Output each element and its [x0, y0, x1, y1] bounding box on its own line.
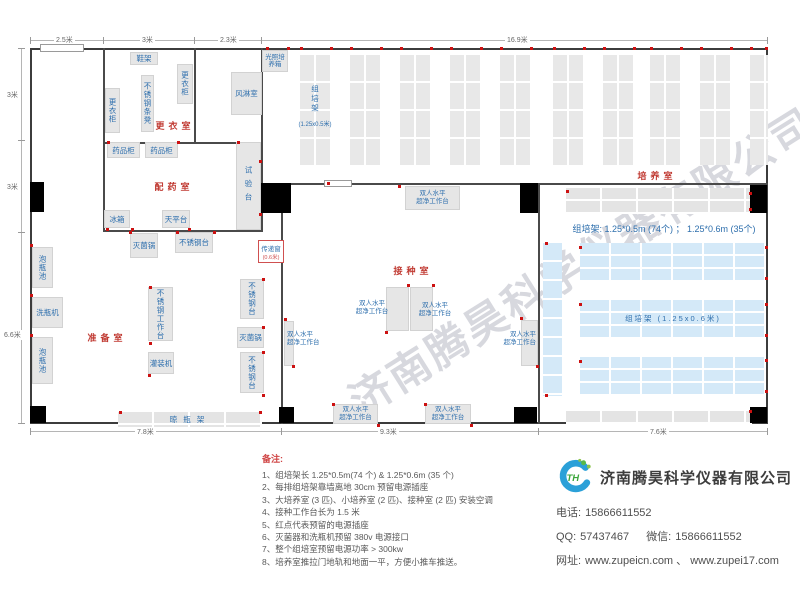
power-outlet-dot [385, 331, 388, 334]
room-label-pharmacy: 配药室 [145, 180, 203, 193]
power-outlet-dot [262, 351, 265, 354]
pass-window-label: 传递窗 [261, 243, 281, 253]
power-outlet-dot [350, 47, 353, 50]
power-outlet-dot [749, 410, 752, 413]
door-block [30, 182, 44, 212]
culture-rack [450, 55, 480, 165]
power-outlet-dot [177, 141, 180, 144]
shoe-rack: 鞋架 [130, 52, 158, 65]
dim-label: 2.3米 [218, 35, 239, 45]
dim-tick [18, 423, 25, 424]
culture-rack [553, 55, 583, 165]
medicine-cabinet: 药品柜 [107, 142, 140, 158]
culture-rack [650, 55, 680, 165]
power-outlet-dot [237, 141, 240, 144]
door-block [261, 183, 291, 213]
wall [281, 183, 283, 424]
power-outlet-dot [266, 47, 269, 50]
dim-tick [103, 37, 104, 44]
power-outlet-dot [107, 141, 110, 144]
power-outlet-dot [545, 242, 548, 245]
power-outlet-dot [30, 334, 33, 337]
culture-rack-blue: 组培架 (1.25x0.6米) [580, 300, 766, 337]
wall [538, 183, 540, 424]
room-label-changing: 更衣室 [147, 119, 203, 132]
soak-pool: 泡瓶池 [32, 247, 53, 288]
fridge: 冰箱 [104, 210, 130, 228]
power-outlet-dot [30, 244, 33, 247]
clean-bench-label: 双人水平 [343, 406, 369, 414]
room-label-prep: 准备室 [78, 331, 136, 344]
power-outlet-dot [188, 228, 191, 231]
dim-tick [281, 428, 282, 435]
power-outlet-dot [262, 394, 265, 397]
light-incubator: 光照培养箱 [262, 50, 288, 72]
wall [103, 48, 105, 232]
clean-bench-label: 双人水平超净工作台 [413, 302, 457, 318]
note-item: 6、灭菌器和洗瓶机预留 380v 电源接口 [262, 531, 547, 543]
power-outlet-dot [424, 403, 427, 406]
balance-table: 天平台 [162, 210, 190, 228]
power-outlet-dot [765, 359, 768, 362]
dim-tick [538, 428, 539, 435]
dim-tick [18, 140, 25, 141]
stainless-table: 不锈钢台 [240, 279, 264, 319]
drying-rack: 晾瓶架 [118, 412, 262, 427]
power-outlet-dot [259, 213, 262, 216]
power-outlet-dot [332, 403, 335, 406]
culture-rack-blue [580, 243, 766, 280]
power-outlet-dot [259, 160, 262, 163]
power-outlet-dot [480, 47, 483, 50]
power-outlet-dot [330, 47, 333, 50]
dim-tick [30, 37, 31, 44]
power-outlet-dot [680, 47, 683, 50]
power-outlet-dot [30, 294, 33, 297]
dim-label: 3米 [5, 90, 20, 100]
dim-label: 3米 [5, 182, 20, 192]
bottle-washer: 洗瓶机 [32, 297, 63, 328]
power-outlet-dot [765, 246, 768, 249]
company-site-line: 网址:www.zupeicn.com 、 www.zupei17.com [556, 552, 791, 568]
website: www.zupeicn.com 、 www.zupei17.com [585, 555, 779, 567]
room-label-inoculation: 接种室 [384, 264, 442, 277]
power-outlet-dot [380, 47, 383, 50]
power-outlet-dot [583, 47, 586, 50]
door-opening [40, 44, 84, 52]
rack-blue-label: 组培架 (1.25x0.6米) [625, 313, 721, 324]
note-item: 1、组培架长 1.25*0.5m(74 个) & 1.25*0.6m (35 个… [262, 469, 547, 481]
power-outlet-dot [430, 47, 433, 50]
power-outlet-dot [765, 303, 768, 306]
soak-pool: 泡瓶池 [32, 337, 53, 384]
culture-rack [603, 55, 633, 165]
dim-tick [261, 37, 262, 44]
svg-text:TH: TH [566, 473, 580, 484]
room-label-culture: 培养室 [628, 169, 686, 182]
power-outlet-dot [106, 228, 109, 231]
drying-rack-label: 晾瓶架 [170, 414, 211, 425]
note-item: 3、大培养室 (3 匹)、小培养室 (2 匹)、接种室 (2 匹) 安装空调 [262, 494, 547, 506]
sterilizer: 灭菌锅 [130, 233, 158, 258]
note-item: 8、培养室推拉门地轨和地面一平，方便小推车推送。 [262, 556, 547, 568]
door-block [30, 406, 46, 423]
power-outlet-dot [500, 47, 503, 50]
power-outlet-dot [300, 47, 303, 50]
clean-bench: 双人水平 超净工作台 [425, 404, 471, 424]
dim-tick [30, 428, 31, 435]
note-item: 2、每排组培架靠墙离地 30cm 预留电源插座 [262, 481, 547, 493]
power-outlet-dot [750, 47, 753, 50]
culture-rack-blue [580, 357, 766, 394]
medicine-cabinet: 药品柜 [145, 142, 178, 158]
culture-rack [750, 55, 768, 165]
culture-rack-horizontal [566, 411, 752, 424]
dim-tick [767, 37, 768, 44]
clean-bench-label: 超净工作台 [416, 198, 449, 206]
power-outlet-dot [377, 424, 380, 427]
power-outlet-dot [650, 47, 653, 50]
test-bench: 试验台 [236, 142, 261, 230]
door-block [279, 407, 294, 423]
clean-bench-label: 双人水平 [435, 406, 461, 414]
dim-label: 16.9米 [505, 35, 530, 45]
clean-bench: 双人水平 超净工作台 [405, 186, 460, 210]
culture-rack-label: 组培架 (1.25x0.5米) [294, 85, 336, 128]
power-outlet-dot [730, 47, 733, 50]
clean-bench-label: 双人水平超净工作台 [492, 331, 536, 347]
company-phone-line: 电话:15866611552 [556, 504, 791, 520]
power-outlet-dot [149, 342, 152, 345]
power-outlet-dot [520, 317, 523, 320]
power-outlet-dot [765, 47, 768, 50]
power-outlet-dot [176, 231, 179, 234]
locker: 更衣柜 [177, 64, 193, 104]
clean-bench: 双人水平 超净工作台 [333, 404, 378, 424]
power-outlet-dot [149, 286, 152, 289]
wechat-number: 15866611552 [675, 531, 741, 543]
dim-label: 7.8米 [135, 427, 156, 437]
qq-number: 57437467 [580, 531, 629, 543]
power-outlet-dot [119, 411, 122, 414]
power-outlet-dot [287, 47, 290, 50]
pass-window: 传递窗 (0.6米) [258, 240, 284, 263]
dimension-line-left [21, 48, 22, 424]
dim-label: 3米 [140, 35, 155, 45]
filling-machine: 灌装机 [148, 352, 174, 374]
power-outlet-dot [450, 47, 453, 50]
dim-tick [18, 232, 25, 233]
power-outlet-dot [579, 246, 582, 249]
door-block [514, 407, 537, 423]
dim-label: 9.3米 [378, 427, 399, 437]
power-outlet-dot [749, 192, 752, 195]
note-item: 7、整个组培室预留电源功率 > 300kw [262, 543, 547, 555]
power-outlet-dot [566, 190, 569, 193]
power-outlet-dot [603, 47, 606, 50]
power-outlet-dot [400, 47, 403, 50]
power-outlet-dot [530, 47, 533, 50]
dim-tick [194, 37, 195, 44]
phone-number: 15866611552 [585, 507, 651, 519]
power-outlet-dot [579, 360, 582, 363]
notes-title: 备注: [262, 452, 547, 465]
air-shower: 风淋室 [231, 72, 262, 115]
power-outlet-dot [327, 182, 330, 185]
pass-window-size: (0.6米) [263, 253, 280, 261]
dim-tick [767, 428, 768, 435]
note-item: 4、接种工作台长为 1.5 米 [262, 506, 547, 518]
dim-label: 7.6米 [648, 427, 669, 437]
company-logo: TH [556, 458, 594, 496]
power-outlet-dot [470, 424, 473, 427]
power-outlet-dot [262, 326, 265, 329]
company-qq-line: QQ:57437467 微信:15866611552 [556, 528, 791, 544]
power-outlet-dot [633, 47, 636, 50]
note-item: 5、红点代表预留的电源插座 [262, 519, 547, 531]
power-outlet-dot [765, 390, 768, 393]
power-outlet-dot [749, 208, 752, 211]
dim-tick [18, 48, 25, 49]
culture-rack [700, 55, 730, 165]
culture-rack-blue-vertical [543, 243, 562, 396]
rack-summary: 组培架: 1.25*0.5m (74个) ； 1.25*0.6m (35个) [558, 222, 770, 235]
culture-rack-horizontal [566, 188, 750, 214]
stainless-table: 不锈钢台 [240, 352, 264, 393]
power-outlet-dot [292, 365, 295, 368]
company-name: 济南腾昊科学仪器有限公司 [600, 467, 792, 488]
culture-rack [500, 55, 530, 165]
power-outlet-dot [700, 47, 703, 50]
power-outlet-dot [259, 411, 262, 414]
culture-rack [400, 55, 430, 165]
clean-bench-label: 超净工作台 [432, 414, 465, 422]
power-outlet-dot [213, 231, 216, 234]
door-block [520, 183, 538, 213]
power-outlet-dot [432, 284, 435, 287]
company-block: TH 济南腾昊科学仪器有限公司 电话:15866611552 QQ:574374… [556, 458, 791, 568]
power-outlet-dot [262, 278, 265, 281]
culture-rack [350, 55, 380, 165]
door-block [750, 407, 767, 423]
stainless-worktable: 不锈钢工作台 [148, 287, 173, 341]
power-outlet-dot [553, 47, 556, 50]
power-outlet-dot [579, 303, 582, 306]
clean-bench-label: 双人水平超净工作台 [287, 331, 331, 347]
locker: 更衣柜 [105, 88, 120, 133]
power-outlet-dot [765, 277, 768, 280]
dim-label: 6.6米 [2, 330, 23, 340]
power-outlet-dot [284, 318, 287, 321]
power-outlet-dot [545, 394, 548, 397]
stainless-table: 不锈钢台 [175, 232, 213, 253]
power-outlet-dot [129, 231, 132, 234]
clean-bench-label: 超净工作台 [339, 414, 372, 422]
power-outlet-dot [398, 185, 401, 188]
clean-bench-label: 双人水平 [420, 190, 446, 198]
floor-plan-canvas: 济南腾昊科学仪器有限公司 2.5米 3米 2.3米 16.9米 3米 3米 6.… [0, 0, 800, 600]
power-outlet-dot [148, 374, 151, 377]
sterilizer: 灭菌锅 [237, 327, 264, 348]
clean-bench-label: 双人水平超净工作台 [350, 300, 394, 316]
power-outlet-dot [407, 284, 410, 287]
door-block [750, 185, 767, 213]
power-outlet-dot [536, 365, 539, 368]
power-outlet-dot [765, 334, 768, 337]
notes-block: 备注: 1、组培架长 1.25*0.5m(74 个) & 1.25*0.6m (… [262, 452, 547, 568]
